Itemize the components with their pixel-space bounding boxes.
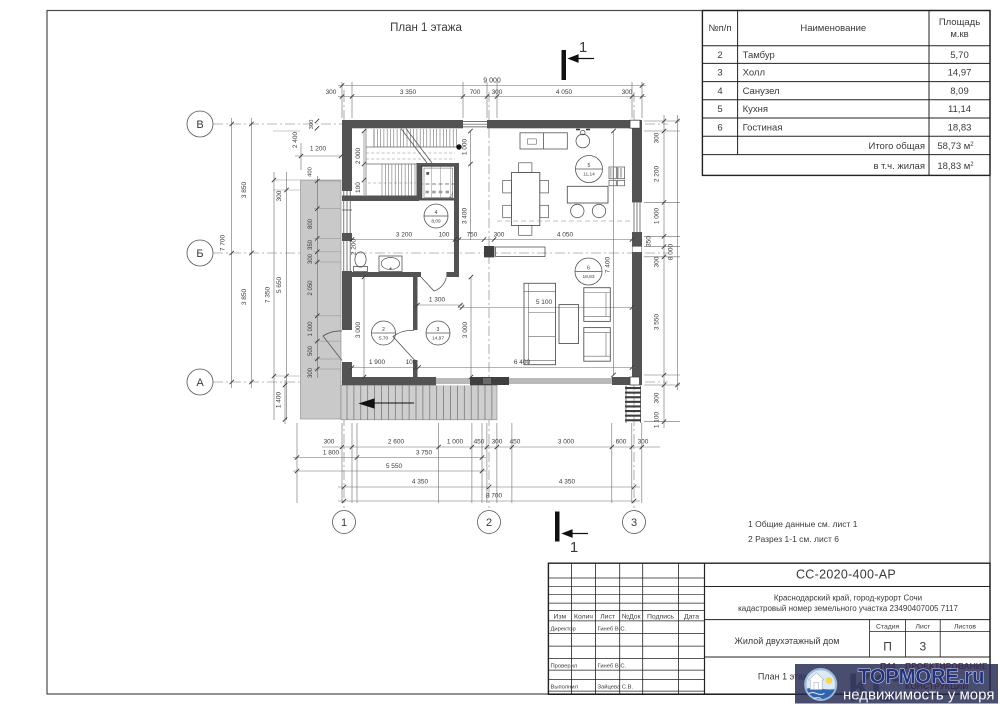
svg-text:100: 100 [406, 359, 417, 366]
svg-text:1 000: 1 000 [308, 321, 314, 337]
svg-text:1 000: 1 000 [447, 439, 464, 446]
svg-text:1 800: 1 800 [323, 450, 340, 457]
svg-text:2 000: 2 000 [355, 147, 362, 164]
svg-text:6 400: 6 400 [514, 359, 531, 366]
svg-text:14,97: 14,97 [948, 68, 972, 79]
svg-text:Листов: Листов [954, 624, 976, 631]
svg-text:4 050: 4 050 [557, 232, 574, 239]
svg-text:№Док: №Док [622, 613, 641, 620]
svg-text:4 050: 4 050 [556, 89, 573, 96]
svg-text:3 750: 3 750 [416, 450, 433, 457]
svg-text:300: 300 [494, 232, 505, 239]
svg-text:5: 5 [717, 104, 722, 115]
svg-text:Б: Б [196, 248, 203, 260]
svg-text:58,73 м2: 58,73 м2 [937, 141, 974, 152]
svg-text:м.кв: м.кв [950, 29, 968, 40]
svg-text:700: 700 [470, 89, 481, 96]
svg-text:3: 3 [437, 327, 440, 333]
svg-text:300: 300 [654, 256, 661, 267]
svg-text:1 000: 1 000 [654, 207, 661, 224]
svg-text:4 350: 4 350 [412, 479, 429, 486]
svg-text:1: 1 [341, 517, 347, 529]
svg-text:3: 3 [631, 517, 637, 529]
svg-text:2: 2 [717, 50, 722, 61]
svg-text:300: 300 [492, 439, 503, 446]
svg-text:3: 3 [717, 68, 722, 79]
svg-text:1 000: 1 000 [462, 138, 469, 155]
svg-text:Гинеб В.С.: Гинеб В.С. [598, 663, 627, 669]
svg-text:1: 1 [570, 539, 578, 556]
svg-text:300: 300 [654, 132, 661, 143]
svg-text:8 000: 8 000 [668, 243, 675, 260]
svg-text:11,14: 11,14 [583, 172, 595, 178]
svg-text:Гостиная: Гостиная [743, 122, 783, 133]
svg-text:400: 400 [308, 167, 314, 177]
svg-text:3 850: 3 850 [241, 181, 248, 198]
svg-text:300: 300 [276, 190, 283, 201]
svg-text:3 350: 3 350 [400, 89, 417, 96]
svg-text:Наименование: Наименование [800, 23, 866, 34]
svg-text:5 100: 5 100 [536, 299, 553, 306]
svg-text:8 700: 8 700 [486, 493, 503, 500]
svg-text:№п/п: №п/п [708, 23, 731, 34]
svg-text:Зайцева С.В.: Зайцева С.В. [598, 683, 634, 690]
svg-text:600: 600 [616, 439, 627, 446]
svg-text:Тамбур: Тамбур [743, 50, 775, 61]
svg-text:4: 4 [435, 210, 438, 216]
svg-text:9 000: 9 000 [483, 78, 501, 85]
svg-text:в т.ч. жилая: в т.ч. жилая [874, 161, 926, 172]
svg-text:Подпись: Подпись [647, 613, 674, 620]
svg-text:1: 1 [579, 39, 587, 56]
svg-text:Стадия: Стадия [876, 624, 899, 631]
svg-text:Итого общая: Итого общая [868, 141, 925, 152]
svg-text:1 100: 1 100 [654, 411, 661, 428]
svg-text:350: 350 [646, 236, 653, 247]
svg-text:1 200: 1 200 [310, 146, 327, 153]
svg-text:Дата: Дата [684, 613, 699, 620]
svg-text:Директор: Директор [551, 626, 576, 632]
svg-text:недвижимость у моря: недвижимость у моря [843, 687, 994, 704]
svg-text:2 200: 2 200 [654, 165, 661, 182]
svg-text:500: 500 [308, 345, 314, 356]
svg-text:2 050: 2 050 [308, 280, 314, 296]
svg-text:450: 450 [510, 439, 521, 446]
svg-text:А: А [196, 377, 204, 389]
svg-text:300: 300 [324, 439, 335, 446]
svg-text:6: 6 [717, 122, 722, 133]
svg-text:СС-2020-400-АР: СС-2020-400-АР [796, 568, 896, 582]
svg-text:4 350: 4 350 [559, 479, 576, 486]
svg-text:3 550: 3 550 [654, 313, 661, 330]
svg-text:750: 750 [467, 232, 478, 239]
svg-text:8,09: 8,09 [431, 219, 441, 225]
svg-text:Выполнил: Выполнил [551, 684, 578, 690]
svg-text:Колич: Колич [574, 613, 593, 620]
svg-text:3: 3 [920, 640, 927, 654]
svg-text:5 550: 5 550 [386, 463, 403, 470]
svg-text:3 850: 3 850 [241, 288, 248, 305]
svg-text:Санузел: Санузел [743, 86, 780, 97]
svg-text:5: 5 [588, 163, 591, 169]
svg-text:11,14: 11,14 [948, 104, 971, 115]
svg-text:3 000: 3 000 [558, 439, 575, 446]
svg-text:300: 300 [638, 439, 649, 446]
svg-text:кадастровый номер земельного у: кадастровый номер земельного участка 234… [738, 604, 958, 613]
svg-text:7 700: 7 700 [220, 234, 227, 251]
svg-text:2 600: 2 600 [388, 439, 405, 446]
svg-text:18,83: 18,83 [948, 122, 972, 133]
svg-text:Жилой двухэтажный дом: Жилой двухэтажный дом [735, 636, 840, 646]
svg-text:1 400: 1 400 [276, 391, 283, 408]
svg-text:TOPMORE.ru: TOPMORE.ru [858, 666, 984, 688]
svg-text:Площадь: Площадь [939, 17, 980, 28]
svg-text:300: 300 [308, 367, 314, 378]
svg-text:3 400: 3 400 [462, 207, 469, 224]
svg-text:350: 350 [308, 239, 314, 250]
svg-text:Холл: Холл [743, 68, 765, 79]
svg-text:18,83: 18,83 [582, 274, 594, 280]
svg-text:2: 2 [382, 327, 385, 333]
svg-text:2: 2 [486, 517, 492, 529]
svg-text:300: 300 [492, 89, 503, 96]
svg-text:18,83 м2: 18,83 м2 [937, 161, 974, 172]
svg-text:1 300: 1 300 [429, 297, 446, 304]
svg-text:2 400: 2 400 [292, 131, 299, 148]
svg-text:Изм: Изм [554, 613, 567, 620]
svg-text:2 200: 2 200 [351, 238, 358, 255]
svg-text:5,70: 5,70 [950, 50, 969, 61]
svg-text:300: 300 [308, 253, 314, 264]
svg-text:3 000: 3 000 [355, 321, 362, 338]
svg-text:100: 100 [439, 232, 450, 239]
svg-text:Лист: Лист [600, 613, 615, 620]
svg-text:800: 800 [308, 218, 314, 229]
svg-text:5,70: 5,70 [379, 336, 389, 342]
svg-text:2 Разрез 1-1 см. лист 6: 2 Разрез 1-1 см. лист 6 [748, 534, 839, 544]
svg-text:6: 6 [587, 265, 590, 271]
svg-text:300: 300 [654, 392, 661, 403]
svg-text:300: 300 [326, 89, 337, 96]
svg-text:4: 4 [717, 86, 722, 97]
svg-text:1 900: 1 900 [369, 359, 386, 366]
svg-text:300: 300 [309, 120, 315, 130]
svg-text:План 1 этажа: План 1 этажа [390, 22, 462, 34]
svg-text:7 350: 7 350 [265, 286, 272, 303]
svg-text:5 650: 5 650 [276, 276, 283, 293]
svg-text:3 200: 3 200 [396, 232, 413, 239]
svg-text:1 Общие данные см. лист 1: 1 Общие данные см. лист 1 [748, 519, 858, 529]
svg-text:Лист: Лист [916, 624, 931, 631]
svg-text:Краснодарский край, город-куро: Краснодарский край, город-курорт Сочи [774, 594, 922, 603]
svg-text:Кухня: Кухня [743, 104, 768, 115]
svg-text:Гинеб В.С.: Гинеб В.С. [598, 626, 627, 632]
svg-text:8,09: 8,09 [950, 86, 969, 97]
svg-text:7 400: 7 400 [605, 256, 612, 273]
svg-text:П: П [883, 640, 892, 654]
svg-text:14,97: 14,97 [432, 336, 444, 342]
svg-text:3 000: 3 000 [462, 321, 469, 338]
svg-text:450: 450 [474, 439, 485, 446]
svg-text:Проверил: Проверил [551, 663, 578, 669]
svg-text:В: В [196, 119, 203, 131]
svg-text:300: 300 [622, 89, 633, 96]
svg-text:100: 100 [355, 182, 362, 193]
